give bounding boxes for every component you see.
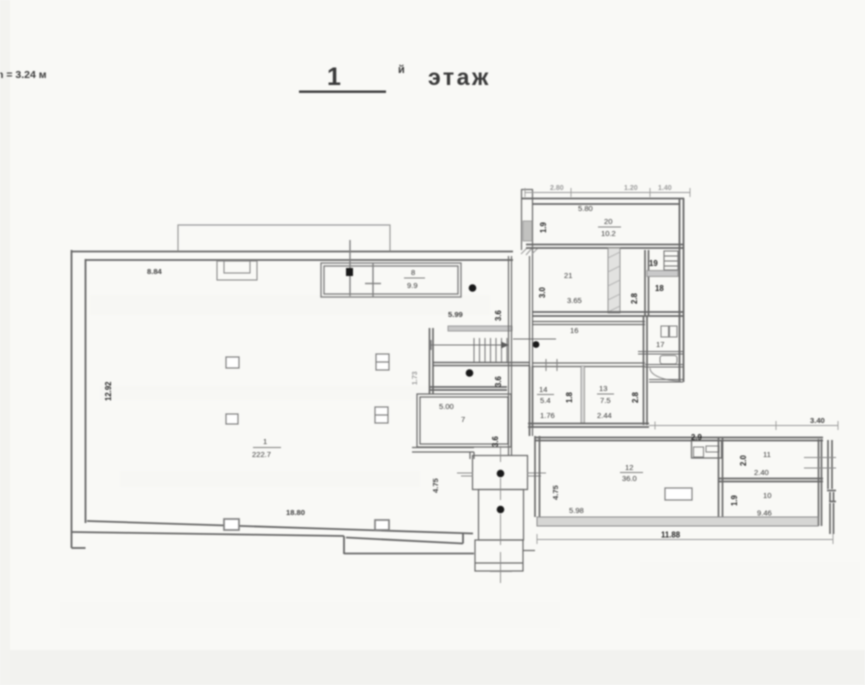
svg-text:11: 11 [763, 450, 771, 459]
svg-text:2.0: 2.0 [739, 454, 748, 466]
svg-text:1: 1 [263, 437, 267, 446]
svg-text:й: й [398, 64, 405, 76]
svg-text:2.80: 2.80 [550, 185, 564, 192]
svg-text:12.92: 12.92 [104, 381, 113, 401]
svg-text:20: 20 [604, 217, 612, 226]
svg-text:1: 1 [327, 63, 341, 91]
svg-text:11.88: 11.88 [661, 531, 681, 540]
svg-text:13: 13 [599, 384, 607, 393]
svg-text:3.40: 3.40 [810, 416, 825, 425]
svg-text:14: 14 [539, 385, 547, 394]
svg-text:7: 7 [461, 415, 465, 424]
svg-text:1.76: 1.76 [540, 411, 555, 420]
svg-text:8.84: 8.84 [147, 267, 163, 276]
svg-text:h = 3.24 м: h = 3.24 м [0, 69, 47, 81]
svg-text:5.00: 5.00 [439, 402, 454, 411]
svg-text:1.20: 1.20 [624, 185, 638, 192]
svg-text:36.0: 36.0 [622, 474, 637, 483]
svg-text:1.9: 1.9 [730, 494, 739, 506]
svg-text:1.9: 1.9 [539, 221, 548, 233]
svg-text:4.75: 4.75 [431, 477, 440, 493]
svg-text:19: 19 [649, 259, 658, 268]
svg-text:5.98: 5.98 [569, 506, 584, 515]
svg-text:1.40: 1.40 [658, 185, 672, 192]
svg-text:3.6: 3.6 [494, 309, 503, 321]
svg-text:10.2: 10.2 [601, 229, 616, 238]
svg-text:4.75: 4.75 [551, 484, 560, 500]
svg-text:21: 21 [564, 271, 572, 280]
svg-text:1.8: 1.8 [565, 391, 574, 403]
svg-text:18.80: 18.80 [286, 508, 305, 517]
svg-text:10: 10 [763, 491, 771, 500]
svg-text:222.7: 222.7 [252, 450, 271, 459]
svg-text:9.46: 9.46 [757, 509, 772, 518]
svg-text:7.5: 7.5 [600, 396, 611, 405]
svg-text:5.99: 5.99 [448, 310, 463, 319]
svg-text:1.73: 1.73 [412, 371, 419, 385]
svg-text:12: 12 [625, 463, 633, 472]
svg-text:18: 18 [655, 284, 664, 293]
svg-text:3.6: 3.6 [494, 375, 503, 387]
svg-text:3.0: 3.0 [538, 286, 547, 298]
svg-text:2.8: 2.8 [631, 391, 640, 403]
svg-text:2.44: 2.44 [597, 411, 612, 420]
svg-text:8: 8 [411, 268, 415, 277]
svg-text:2.9: 2.9 [691, 433, 703, 442]
svg-text:этаж: этаж [428, 64, 491, 90]
svg-text:16: 16 [570, 326, 578, 335]
svg-text:2.40: 2.40 [754, 468, 769, 477]
svg-text:9.9: 9.9 [407, 281, 418, 290]
svg-text:3.6: 3.6 [491, 435, 500, 447]
svg-text:5.4: 5.4 [540, 396, 551, 405]
svg-text:17: 17 [656, 340, 664, 349]
svg-text:2.8: 2.8 [630, 292, 639, 304]
svg-text:3.65: 3.65 [567, 296, 582, 305]
svg-text:5.80: 5.80 [578, 204, 593, 213]
